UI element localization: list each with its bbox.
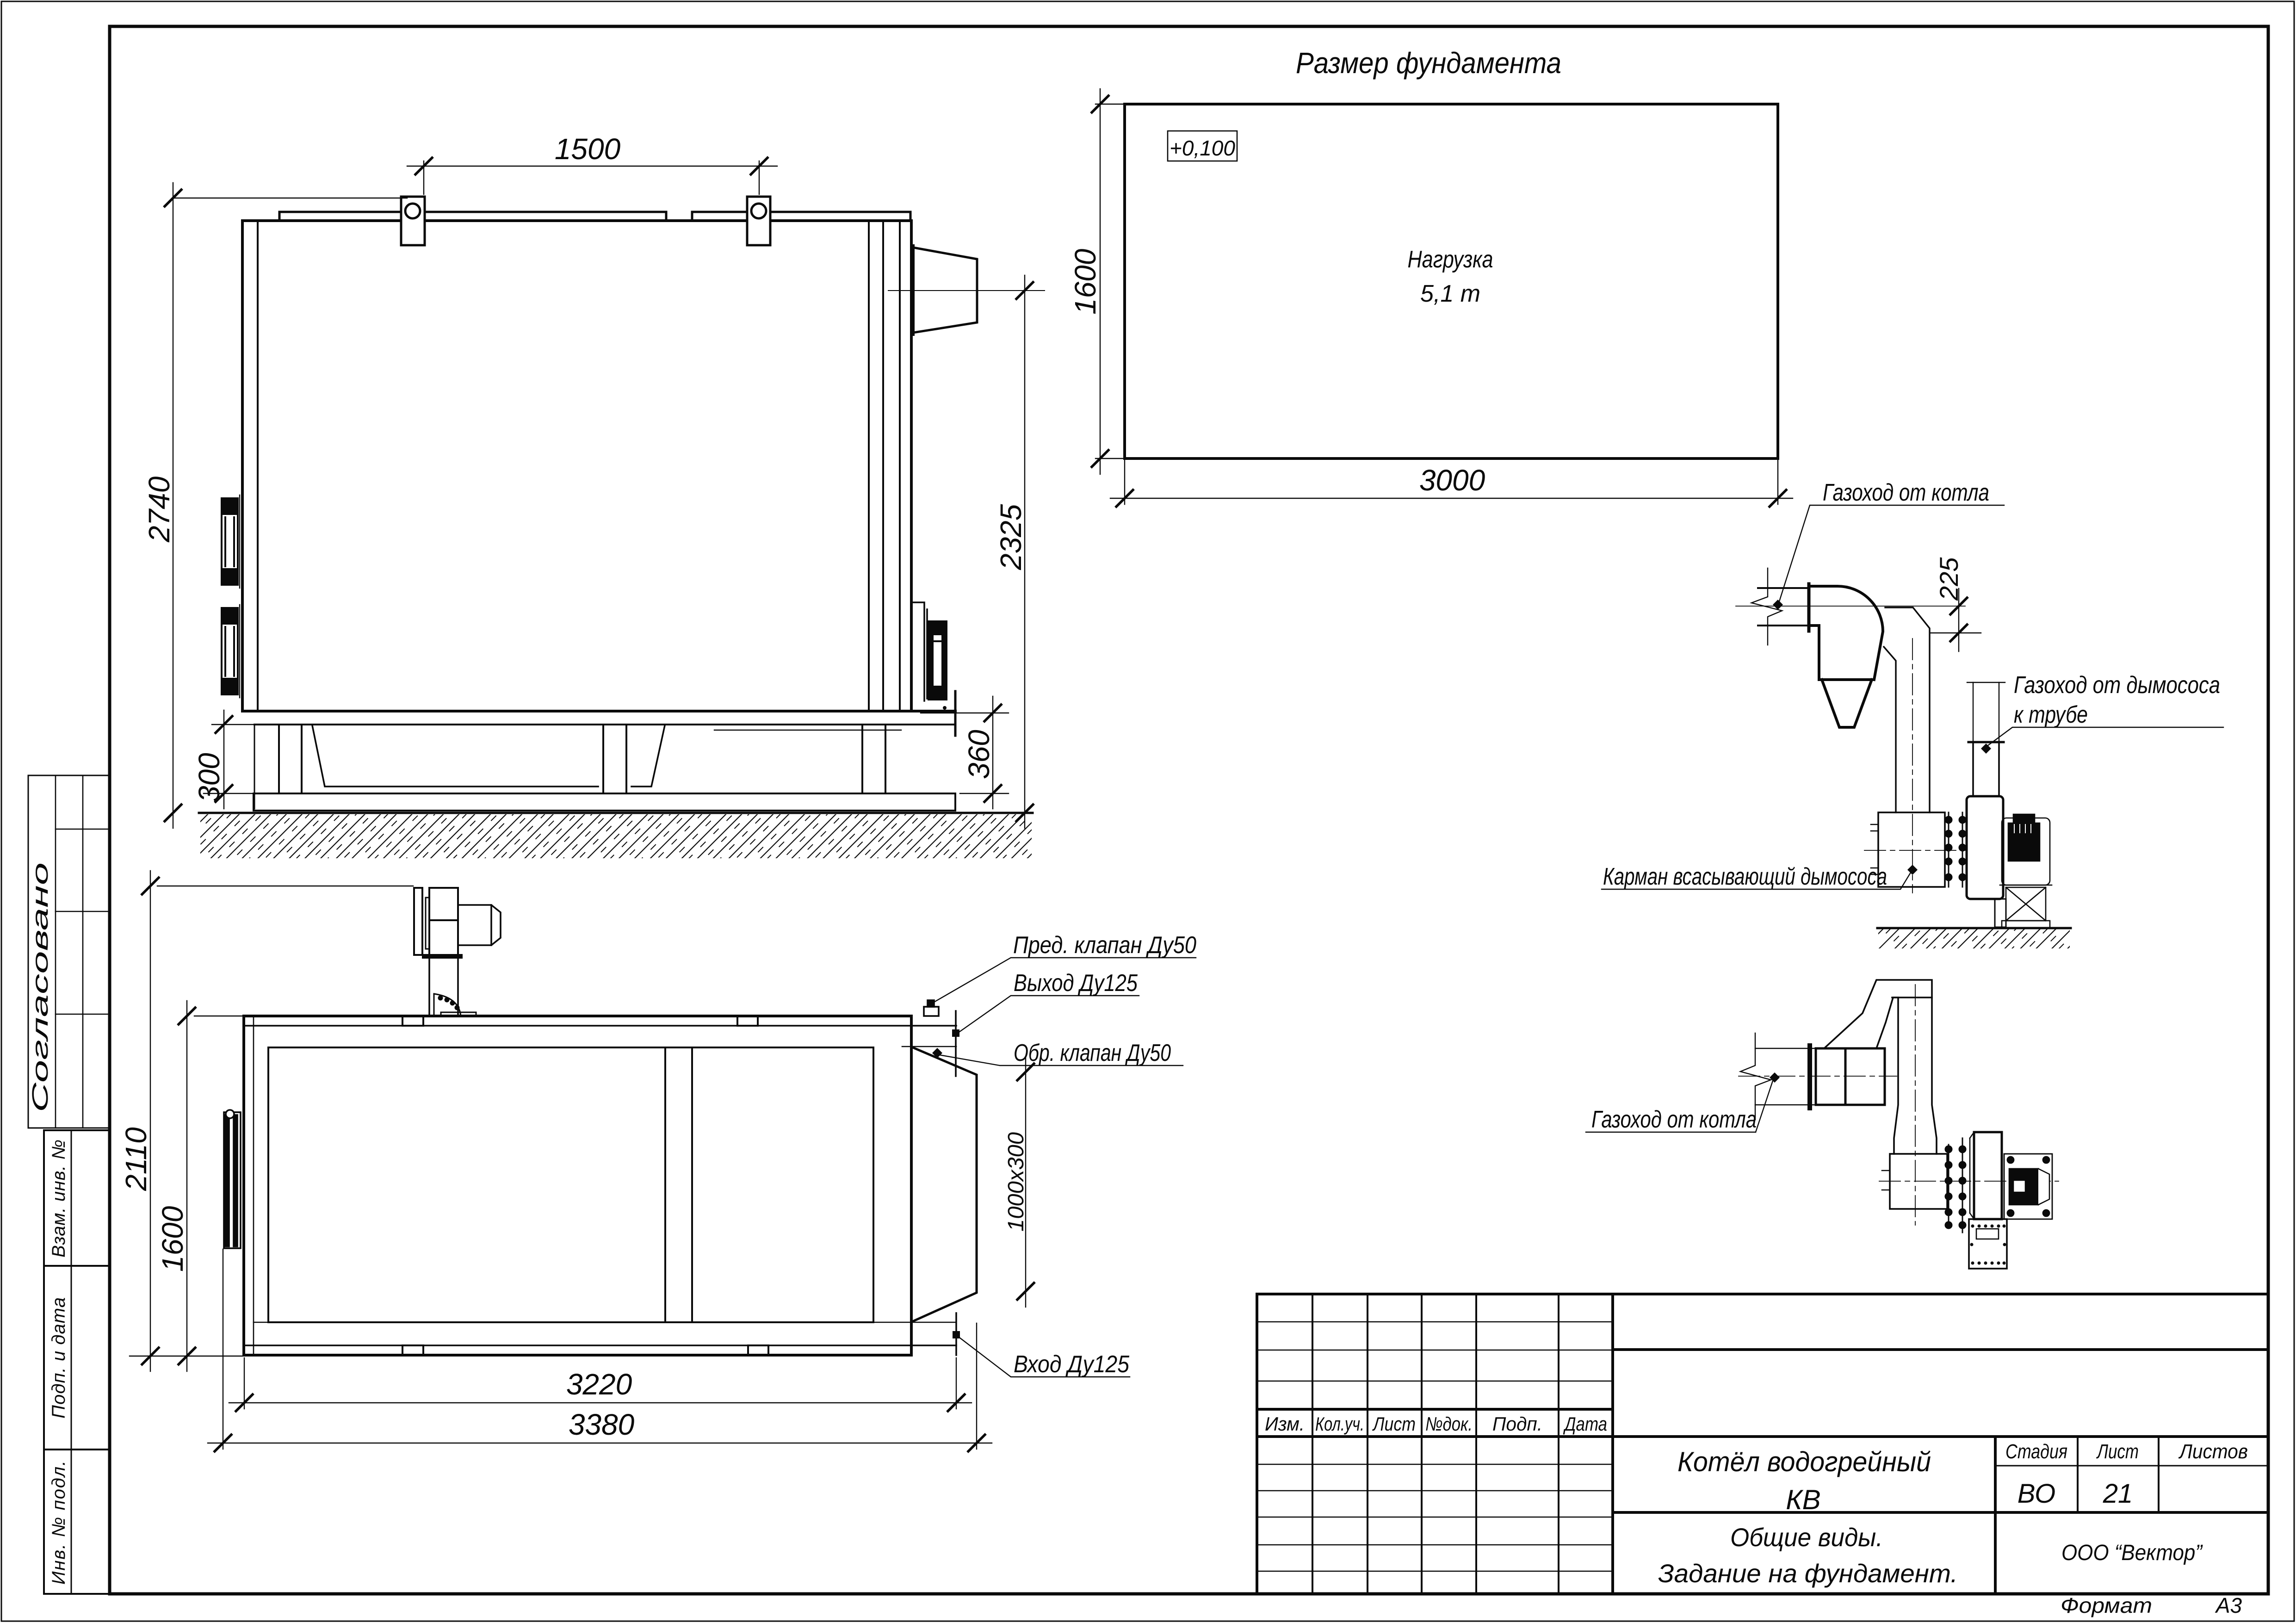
svg-text:Нагрузка: Нагрузка [1408,246,1493,273]
svg-text:№док.: №док. [1425,1413,1473,1435]
svg-text:КВ: КВ [1786,1484,1820,1515]
svg-text:300: 300 [192,753,226,802]
svg-text:2110: 2110 [119,1127,153,1191]
svg-text:Лист: Лист [2096,1440,2139,1463]
svg-text:Вход Ду125: Вход Ду125 [1014,1351,1130,1378]
svg-text:360: 360 [962,730,996,779]
svg-text:Лист: Лист [1372,1413,1416,1435]
svg-text:Подп.: Подп. [1492,1413,1542,1435]
svg-text:Размер фундамента: Размер фундамента [1296,46,1561,80]
svg-text:Обр. клапан Ду50: Обр. клапан Ду50 [1014,1040,1171,1066]
svg-text:225: 225 [1934,557,1963,601]
svg-text:ООО “Вектор”: ООО “Вектор” [2061,1541,2203,1565]
svg-text:1600: 1600 [156,1206,189,1272]
svg-text:5,1 т: 5,1 т [1420,280,1480,307]
svg-text:Задание на фундамент.: Задание на фундамент. [1658,1559,1958,1588]
svg-text:Общие виды.: Общие виды. [1730,1523,1883,1552]
svg-text:А3: А3 [2215,1593,2242,1617]
svg-text:Инв. № подл.: Инв. № подл. [49,1461,69,1585]
svg-text:+0,100: +0,100 [1170,136,1235,160]
svg-text:1500: 1500 [555,132,621,166]
svg-text:2325: 2325 [994,504,1027,570]
svg-text:Изм.: Изм. [1265,1413,1305,1435]
svg-text:ВО: ВО [2018,1479,2056,1509]
svg-text:Подп. и дата: Подп. и дата [49,1297,69,1419]
svg-text:Листов: Листов [2178,1440,2248,1463]
svg-text:21: 21 [2103,1479,2133,1509]
svg-text:1600: 1600 [1069,248,1102,315]
svg-text:Формат: Формат [2061,1593,2152,1617]
svg-text:1000х300: 1000х300 [1004,1132,1028,1232]
svg-text:Выход Ду125: Выход Ду125 [1014,970,1138,997]
svg-text:2740: 2740 [142,476,176,543]
svg-text:Стадия: Стадия [2005,1440,2067,1463]
svg-text:3380: 3380 [569,1408,635,1441]
svg-text:Газоход от котла: Газоход от котла [1823,479,1989,506]
svg-text:Котёл водогрейный: Котёл водогрейный [1677,1446,1931,1477]
svg-text:Пред. клапан Ду50: Пред. клапан Ду50 [1013,932,1196,959]
svg-text:3220: 3220 [566,1368,632,1401]
svg-text:3000: 3000 [1419,464,1485,497]
svg-text:Газоход от дымососа: Газоход от дымососа [2014,672,2220,699]
svg-text:Согласовано: Согласовано [28,862,53,1112]
svg-text:Газоход от котла: Газоход от котла [1591,1106,1757,1133]
svg-text:к трубе: к трубе [2014,701,2088,728]
svg-text:Взам. инв. №: Взам. инв. № [49,1140,69,1258]
svg-text:Кол.уч.: Кол.уч. [1315,1413,1364,1435]
svg-text:Дата: Дата [1563,1413,1607,1435]
svg-text:Карман всасывающий дымососа: Карман всасывающий дымососа [1603,863,1887,890]
